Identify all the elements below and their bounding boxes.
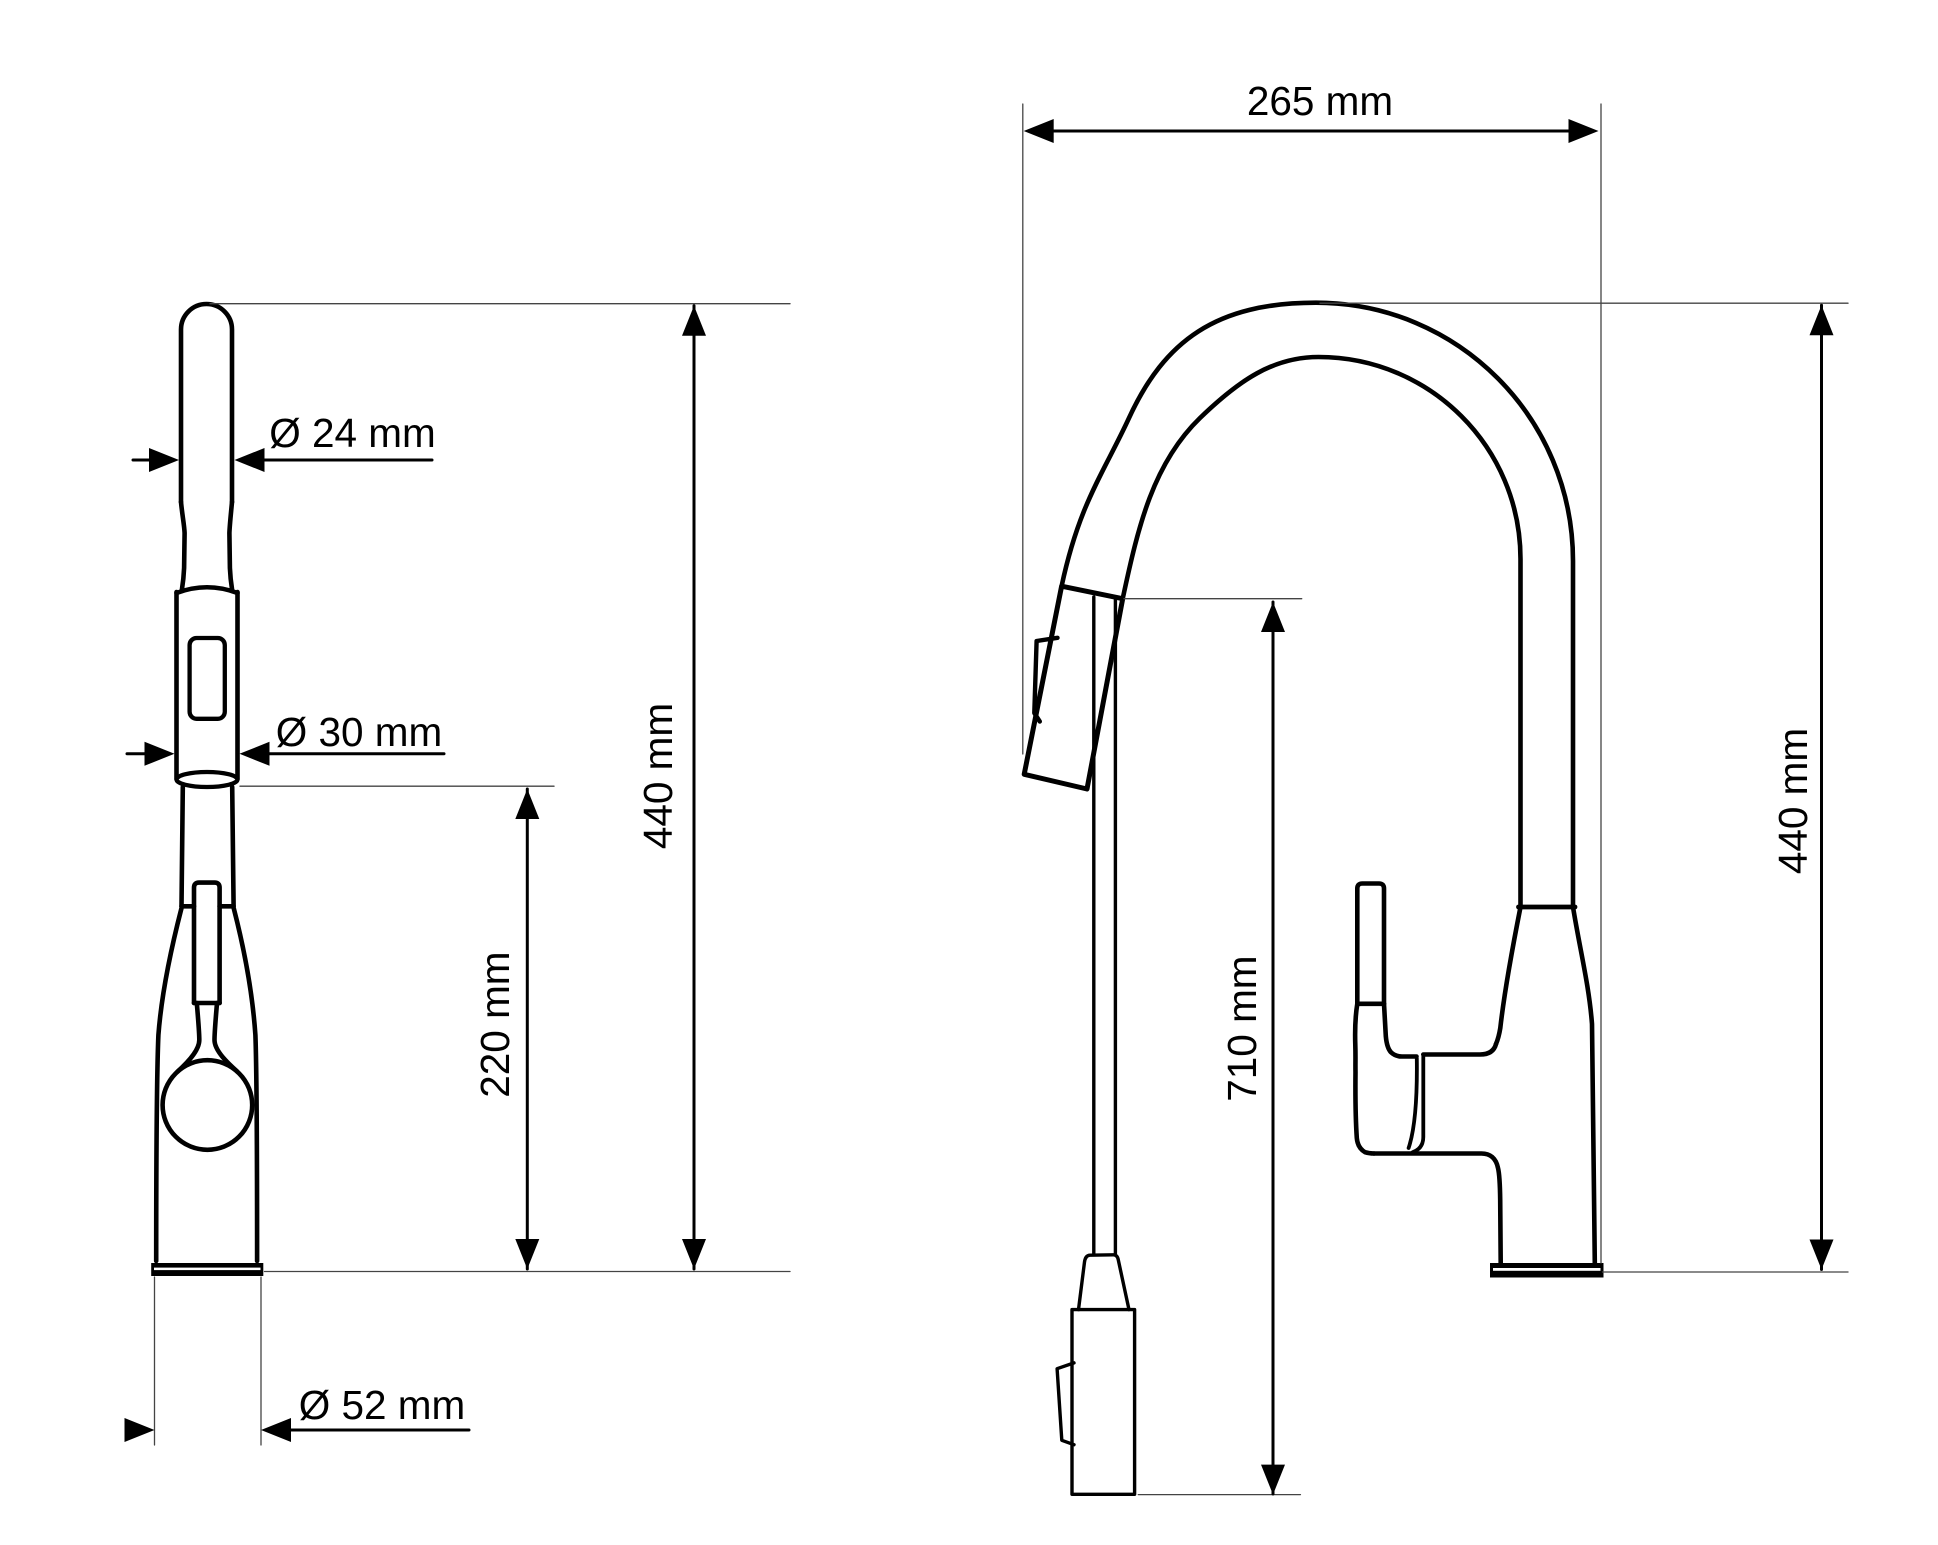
svg-text:Ø 24 mm: Ø 24 mm [269, 410, 436, 456]
svg-text:Ø 30 mm: Ø 30 mm [276, 709, 443, 755]
svg-text:440 mm: 440 mm [635, 703, 681, 849]
svg-text:Ø 52 mm: Ø 52 mm [299, 1382, 466, 1428]
svg-text:440 mm: 440 mm [1770, 728, 1816, 874]
svg-text:265 mm: 265 mm [1247, 78, 1393, 124]
svg-text:220 mm: 220 mm [472, 951, 518, 1097]
svg-text:710 mm: 710 mm [1219, 955, 1265, 1101]
